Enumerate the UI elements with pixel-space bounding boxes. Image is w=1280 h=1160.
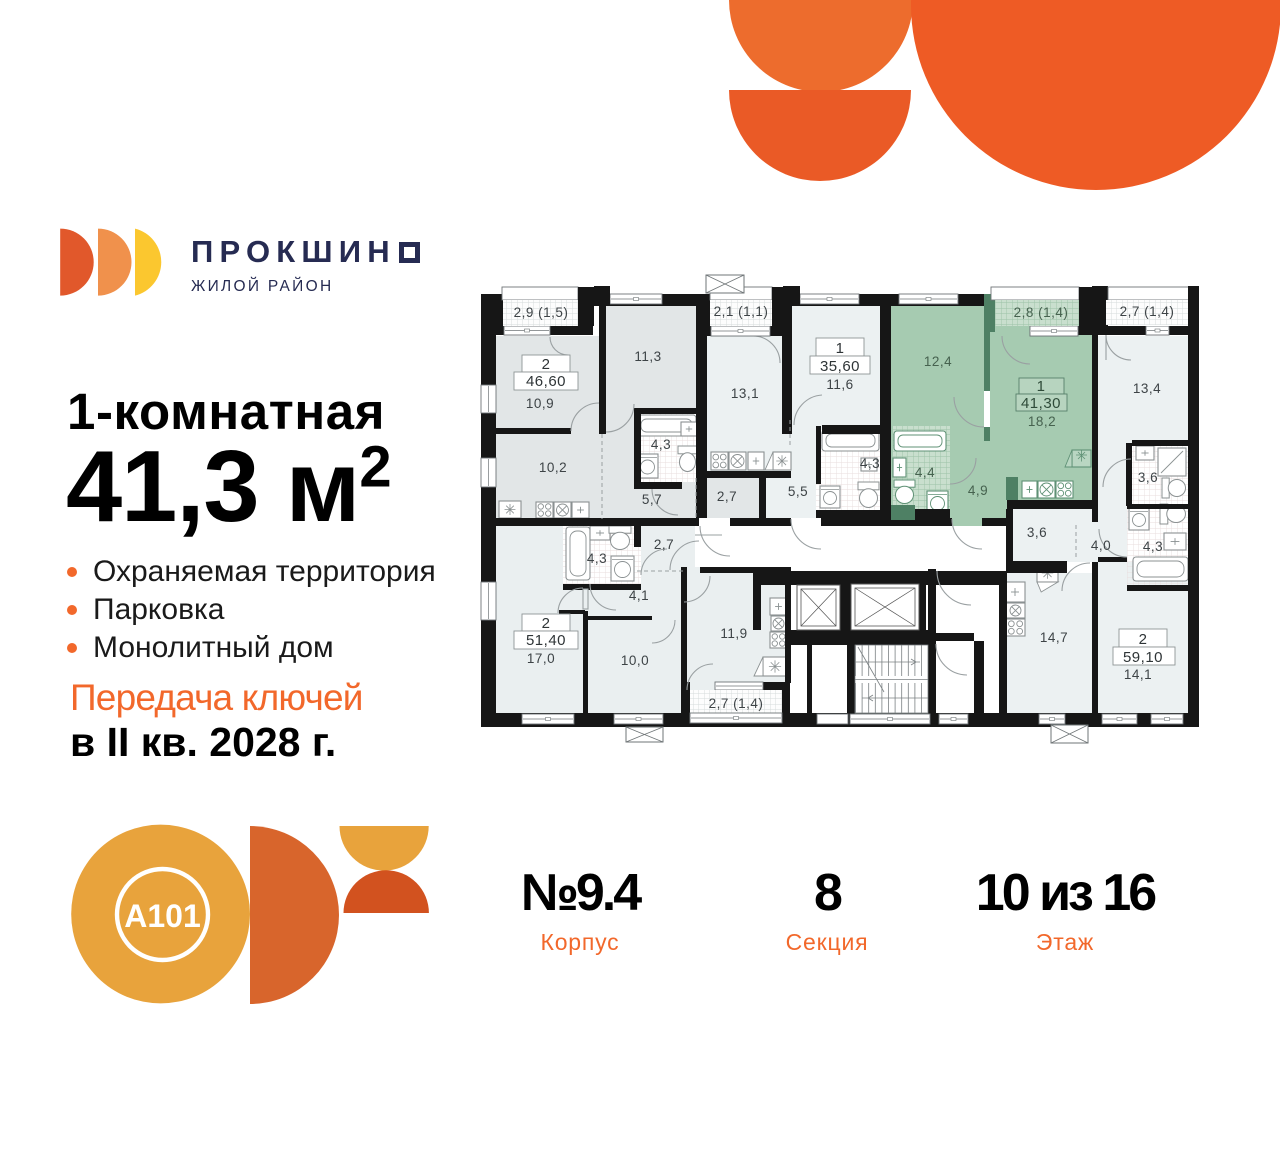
svg-text:10,0: 10,0 [621,653,649,668]
svg-text:4,3: 4,3 [1143,539,1163,554]
svg-text:51,40: 51,40 [526,632,566,649]
svg-text:4,4: 4,4 [915,465,935,480]
svg-text:10,9: 10,9 [526,396,554,411]
svg-text:2: 2 [542,615,551,632]
svg-text:4,0: 4,0 [1091,538,1111,553]
svg-text:2: 2 [542,356,551,373]
svg-text:46,60: 46,60 [526,373,566,390]
svg-text:2,7 (1,4): 2,7 (1,4) [709,696,764,711]
svg-text:A101: A101 [124,898,201,934]
svg-text:2,7: 2,7 [654,537,674,552]
svg-text:12,4: 12,4 [924,354,952,369]
svg-text:3,6: 3,6 [1138,470,1158,485]
svg-text:13,1: 13,1 [731,386,759,401]
svg-text:10,2: 10,2 [539,460,567,475]
svg-text:4,3: 4,3 [860,456,880,471]
svg-text:11,9: 11,9 [720,626,747,641]
svg-text:4,3: 4,3 [587,551,607,566]
svg-text:17,0: 17,0 [527,651,555,666]
svg-text:5,5: 5,5 [788,484,808,499]
svg-text:11,6: 11,6 [826,377,853,392]
svg-text:13,4: 13,4 [1133,381,1161,396]
svg-text:4,1: 4,1 [629,588,649,603]
svg-text:2: 2 [1139,631,1148,648]
svg-text:2,8 (1,4): 2,8 (1,4) [1014,305,1069,320]
svg-text:35,60: 35,60 [820,358,860,375]
svg-text:2,9 (1,5): 2,9 (1,5) [514,305,569,320]
svg-text:59,10: 59,10 [1123,649,1163,666]
svg-text:11,3: 11,3 [634,349,661,364]
svg-text:14,7: 14,7 [1040,630,1068,645]
svg-text:2,7 (1,4): 2,7 (1,4) [1120,304,1175,319]
svg-text:2,7: 2,7 [717,489,737,504]
svg-text:2,1 (1,1): 2,1 (1,1) [714,304,769,319]
svg-text:14,1: 14,1 [1124,667,1152,682]
svg-text:5,7: 5,7 [642,492,662,507]
svg-text:3,6: 3,6 [1027,525,1047,540]
svg-text:18,2: 18,2 [1028,414,1056,429]
svg-text:1: 1 [1037,378,1046,395]
svg-text:4,3: 4,3 [651,437,671,452]
svg-text:4,9: 4,9 [968,483,988,498]
svg-text:1: 1 [836,340,845,357]
svg-text:41,30: 41,30 [1021,395,1061,412]
